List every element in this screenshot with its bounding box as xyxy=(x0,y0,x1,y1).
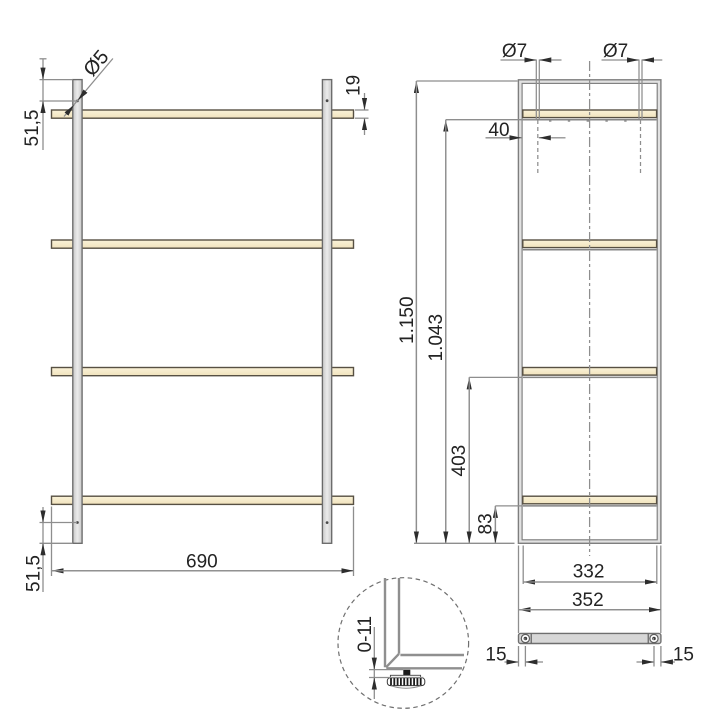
svg-text:Ø7: Ø7 xyxy=(603,41,628,62)
svg-text:Ø5: Ø5 xyxy=(79,46,113,81)
svg-text:Ø7: Ø7 xyxy=(502,41,527,62)
svg-text:1.150: 1.150 xyxy=(397,296,418,344)
svg-text:51,5: 51,5 xyxy=(24,555,45,592)
svg-text:19: 19 xyxy=(344,75,365,96)
svg-text:690: 690 xyxy=(186,551,218,572)
svg-text:51,5: 51,5 xyxy=(22,110,43,147)
svg-text:332: 332 xyxy=(573,562,605,583)
svg-text:15: 15 xyxy=(485,645,506,666)
svg-text:1.043: 1.043 xyxy=(426,314,447,362)
svg-text:0-11: 0-11 xyxy=(355,616,376,653)
svg-text:83: 83 xyxy=(476,513,497,534)
svg-text:403: 403 xyxy=(449,445,470,477)
svg-text:15: 15 xyxy=(673,645,694,666)
svg-text:40: 40 xyxy=(488,120,509,141)
svg-text:352: 352 xyxy=(572,590,604,611)
